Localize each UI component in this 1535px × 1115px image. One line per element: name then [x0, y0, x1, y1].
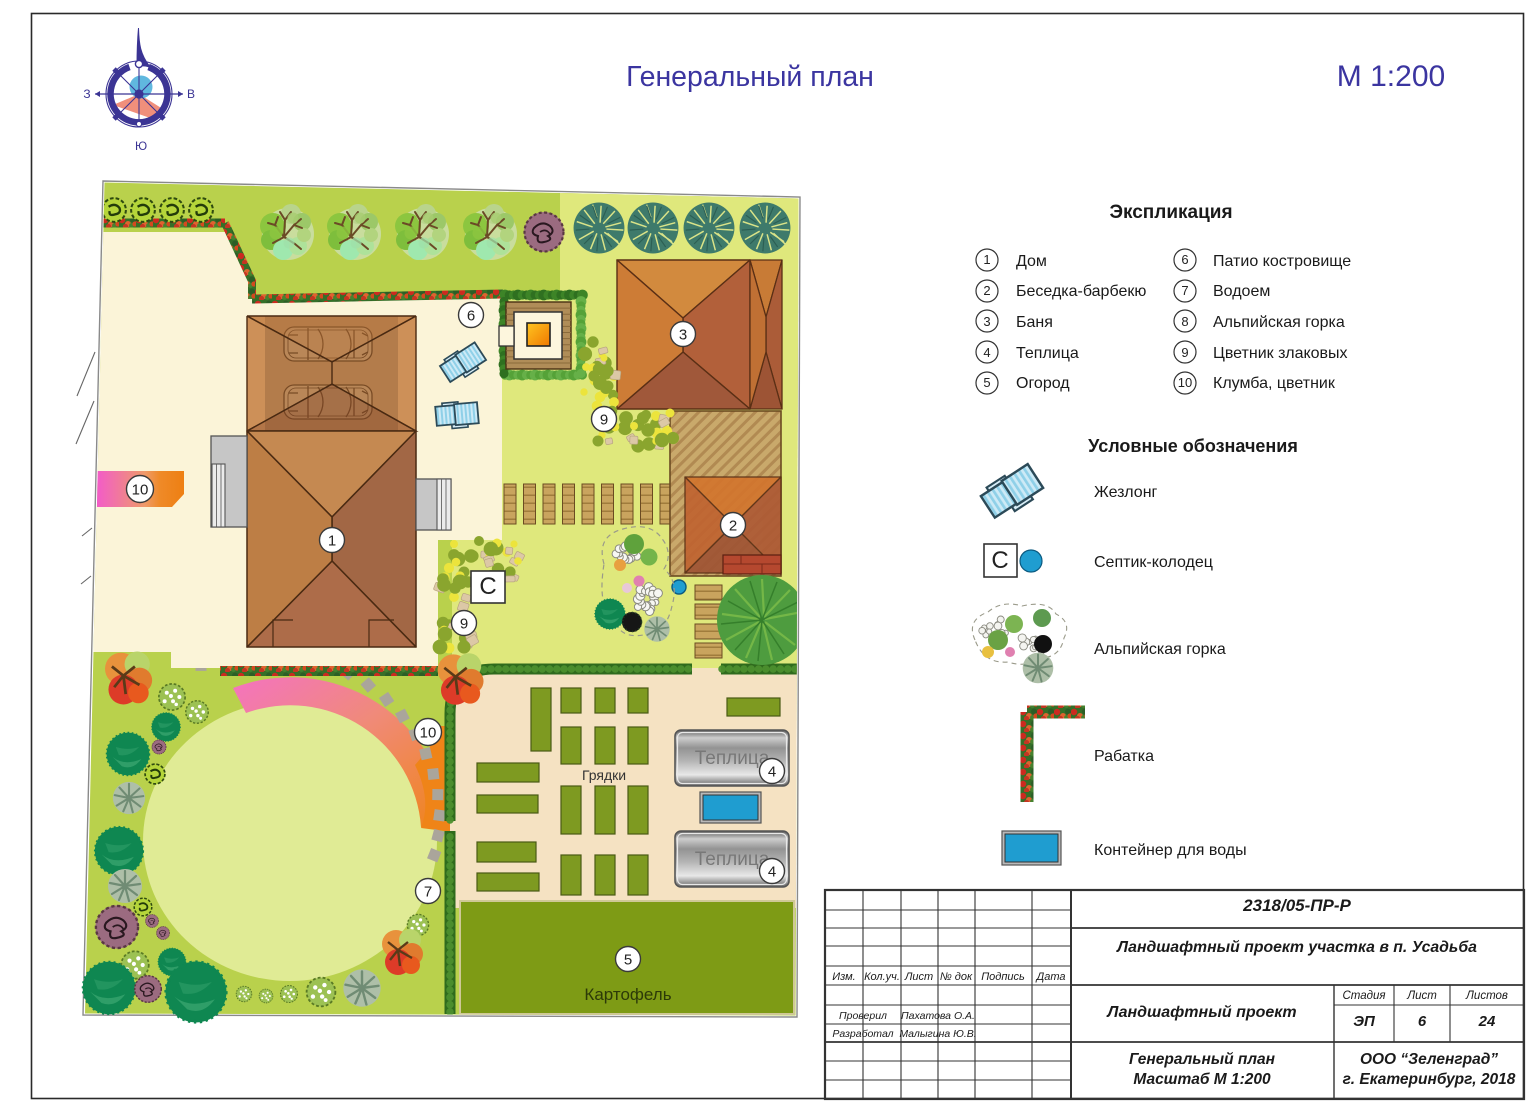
svg-text:Генеральный план: Генеральный план: [1129, 1051, 1276, 1068]
svg-text:Кол.уч.: Кол.уч.: [864, 971, 900, 983]
svg-text:Лист: Лист: [1406, 990, 1437, 1002]
svg-text:6: 6: [467, 307, 475, 324]
svg-text:5: 5: [624, 951, 632, 968]
svg-text:Дом: Дом: [1016, 253, 1047, 270]
svg-text:Водоем: Водоем: [1213, 283, 1270, 300]
svg-text:Теплица: Теплица: [695, 849, 770, 870]
svg-text:Рабатка: Рабатка: [1094, 748, 1154, 765]
svg-text:10: 10: [132, 481, 149, 498]
svg-text:7: 7: [424, 883, 432, 900]
svg-text:Контейнер для воды: Контейнер для воды: [1094, 842, 1247, 859]
svg-text:С: С: [991, 547, 1008, 574]
svg-text:Стадия: Стадия: [1342, 990, 1385, 1002]
svg-text:Условные обозначения: Условные обозначения: [1088, 436, 1298, 456]
svg-text:7: 7: [1181, 283, 1188, 298]
svg-text:З: З: [83, 87, 90, 101]
svg-text:3: 3: [983, 314, 990, 329]
svg-text:9: 9: [460, 615, 468, 632]
svg-text:Теплица: Теплица: [695, 748, 770, 769]
svg-text:Разработал: Разработал: [832, 1028, 893, 1040]
svg-text:Ландшафтный проект участка в п: Ландшафтный проект участка в п. Усадьба: [1116, 939, 1477, 956]
svg-text:10: 10: [1178, 375, 1192, 390]
svg-text:М 1:200: М 1:200: [1337, 60, 1445, 93]
svg-text:4: 4: [768, 863, 776, 880]
svg-text:Огород: Огород: [1016, 375, 1070, 392]
svg-text:4: 4: [983, 345, 990, 360]
svg-text:Ландшафтный проект: Ландшафтный проект: [1106, 1004, 1296, 1021]
svg-text:24: 24: [1478, 1013, 1496, 1030]
svg-text:Альпийская горка: Альпийская горка: [1094, 641, 1226, 658]
svg-text:Картофель: Картофель: [584, 985, 671, 1004]
svg-text:9: 9: [1181, 345, 1188, 360]
svg-text:2318/05-ПР-Р: 2318/05-ПР-Р: [1242, 896, 1351, 915]
svg-text:Подпись: Подпись: [981, 971, 1025, 983]
svg-text:Баня: Баня: [1016, 314, 1053, 331]
svg-text:Генеральный план: Генеральный план: [626, 61, 874, 93]
svg-text:Беседка-барбекю: Беседка-барбекю: [1016, 283, 1146, 300]
svg-text:ЭП: ЭП: [1353, 1013, 1376, 1030]
svg-text:8: 8: [1181, 314, 1188, 329]
svg-text:3: 3: [679, 326, 687, 343]
svg-text:В: В: [187, 87, 195, 101]
svg-text:Клумба, цветник: Клумба, цветник: [1213, 375, 1336, 392]
svg-text:Ю: Ю: [135, 139, 147, 153]
svg-text:Пахатова О.А.: Пахатова О.А.: [901, 1010, 975, 1022]
svg-text:2: 2: [983, 283, 990, 298]
svg-text:Листов: Листов: [1465, 990, 1508, 1002]
svg-text:1: 1: [983, 252, 990, 267]
svg-text:Теплица: Теплица: [1016, 345, 1079, 362]
svg-text:10: 10: [420, 724, 437, 741]
svg-text:№ док: № док: [940, 971, 973, 983]
svg-text:5: 5: [983, 375, 990, 390]
svg-text:Альпийская горка: Альпийская горка: [1213, 314, 1345, 331]
svg-text:Патио костровище: Патио костровище: [1213, 253, 1351, 270]
svg-text:1: 1: [328, 532, 336, 549]
svg-text:Малыгина Ю.В.: Малыгина Ю.В.: [899, 1028, 976, 1040]
svg-text:Изм.: Изм.: [832, 971, 855, 983]
svg-text:6: 6: [1181, 252, 1188, 267]
svg-text:6: 6: [1418, 1013, 1427, 1030]
svg-text:9: 9: [600, 411, 608, 428]
svg-text:4: 4: [768, 763, 776, 780]
svg-text:Экспликация: Экспликация: [1109, 202, 1232, 223]
svg-text:ООО “Зеленград”: ООО “Зеленград”: [1360, 1051, 1498, 1068]
svg-text:Цветник злаковых: Цветник злаковых: [1213, 345, 1348, 362]
svg-text:Масштаб М 1:200: Масштаб М 1:200: [1133, 1071, 1271, 1088]
svg-text:Септик-колодец: Септик-колодец: [1094, 554, 1213, 571]
svg-text:Лист: Лист: [904, 971, 933, 983]
svg-text:Жезлонг: Жезлонг: [1094, 484, 1158, 501]
svg-text:г. Екатеринбург, 2018: г. Екатеринбург, 2018: [1343, 1071, 1516, 1088]
svg-text:С: С: [479, 573, 496, 600]
svg-text:Дата: Дата: [1034, 971, 1065, 983]
svg-text:Грядки: Грядки: [582, 767, 626, 783]
svg-text:2: 2: [729, 517, 737, 534]
svg-text:Проверил: Проверил: [839, 1010, 887, 1022]
